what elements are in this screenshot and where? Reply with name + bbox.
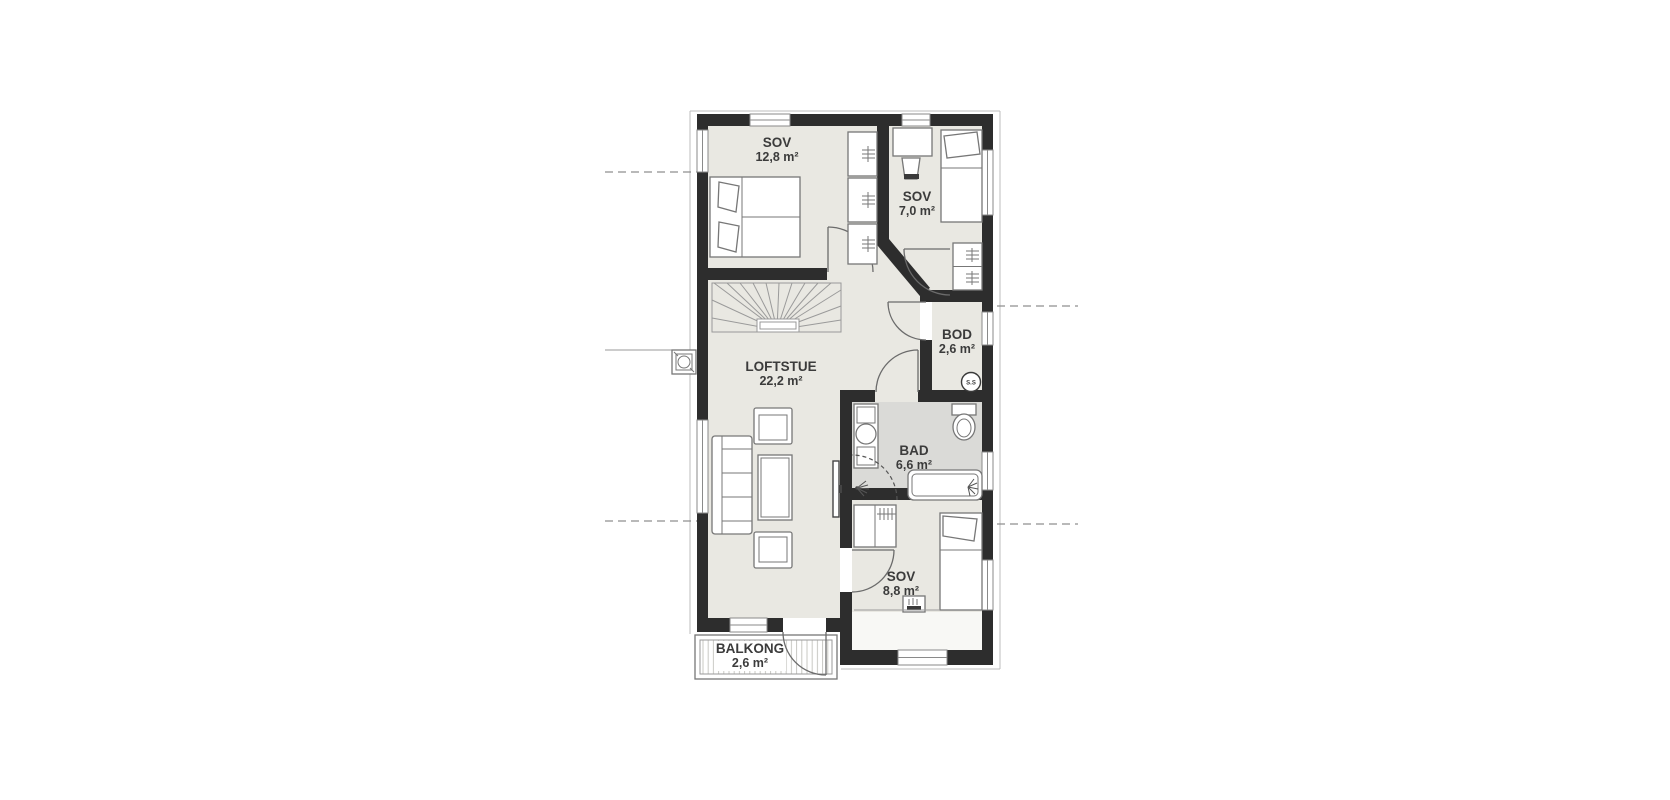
chimney-icon bbox=[672, 350, 696, 374]
sofa-icon bbox=[712, 436, 752, 534]
window-icon bbox=[898, 650, 947, 665]
room-label-balkong-name: BALKONG bbox=[716, 641, 784, 656]
room-label-balkong-area: 2,6 m² bbox=[732, 656, 768, 670]
wardrobe-icon bbox=[854, 505, 896, 547]
single-bed-icon bbox=[941, 130, 982, 222]
coffee-table-icon bbox=[758, 455, 792, 520]
window-icon bbox=[982, 452, 993, 490]
room-label-sov1-area: 12,8 m² bbox=[755, 150, 798, 164]
room-label-loftstue-name: LOFTSTUE bbox=[745, 359, 816, 374]
bathtub-icon bbox=[908, 470, 982, 500]
toilet-icon bbox=[952, 404, 976, 440]
window-icon bbox=[982, 150, 993, 215]
room-label-loftstue-area: 22,2 m² bbox=[759, 374, 802, 388]
room-label-bad-area: 6,6 m² bbox=[896, 458, 932, 472]
room-label-sov3-area: 8,8 m² bbox=[883, 584, 919, 598]
window-icon bbox=[697, 130, 708, 172]
desk-icon bbox=[893, 128, 932, 156]
room-label-bod-name: BOD bbox=[942, 327, 972, 342]
window-icon bbox=[730, 618, 767, 632]
armchair-icon bbox=[754, 532, 792, 568]
window-icon bbox=[982, 560, 993, 610]
sink-icon bbox=[854, 404, 878, 468]
room-label-bod-area: 2,6 m² bbox=[939, 342, 975, 356]
single-bed-icon bbox=[940, 513, 982, 610]
armchair-icon bbox=[754, 408, 792, 444]
window-icon bbox=[902, 114, 930, 126]
window-icon bbox=[750, 114, 790, 126]
room-label-sov2-name: SOV bbox=[903, 189, 932, 204]
floor-plan-svg: S.S SOV 12,8 m² SOV 7,0 m² BOD 2,6 m² BA… bbox=[0, 0, 1670, 800]
double-bed-icon bbox=[710, 177, 800, 257]
balcony-door-opening bbox=[783, 618, 826, 632]
chair-icon bbox=[902, 158, 920, 179]
window-icon bbox=[982, 312, 993, 345]
shaft-badge: S.S bbox=[962, 373, 981, 392]
room-label-sov2-area: 7,0 m² bbox=[899, 204, 935, 218]
room-label-sov1-name: SOV bbox=[763, 135, 792, 150]
shaft-badge-label: S.S bbox=[966, 381, 976, 387]
room-label-sov3-name: SOV bbox=[887, 569, 916, 584]
room-label-bad-name: BAD bbox=[899, 443, 928, 458]
floor-plan-canvas: S.S SOV 12,8 m² SOV 7,0 m² BOD 2,6 m² BA… bbox=[0, 0, 1670, 800]
wardrobe-icon bbox=[848, 132, 877, 264]
low-ceiling-strip bbox=[852, 612, 982, 650]
window-icon bbox=[697, 420, 708, 513]
wardrobe-icon bbox=[953, 243, 982, 290]
stairs-icon bbox=[712, 283, 841, 332]
